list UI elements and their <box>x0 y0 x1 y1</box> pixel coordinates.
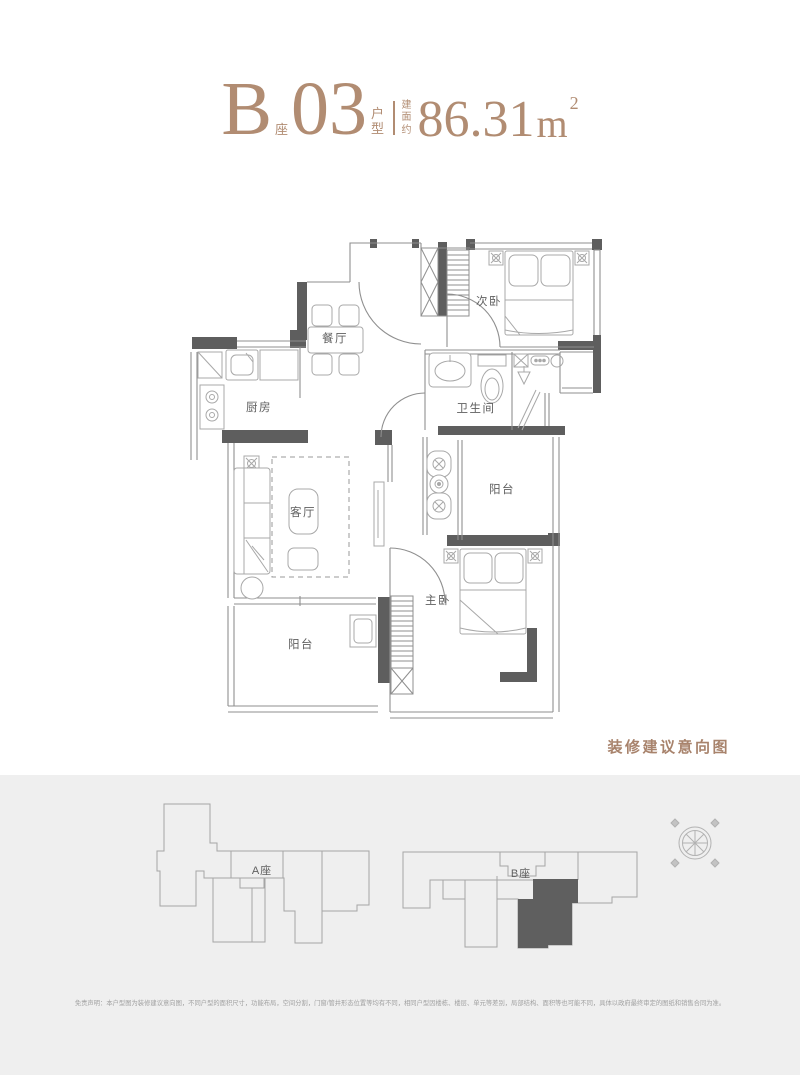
area-unit: m <box>537 108 568 140</box>
compass-icon <box>671 819 719 867</box>
label-kitchen: 厨房 <box>246 401 272 414</box>
building-a-label: A座 <box>252 863 272 877</box>
title-divider <box>393 101 395 135</box>
label-balcony-south: 阳台 <box>288 637 314 651</box>
building-letter: B <box>221 78 272 140</box>
site-plan: A座 B座 免责声明：本户型图为装修建议意向图，不同户型的面积尺寸，功能布局，空… <box>0 775 800 1075</box>
unit-type-label: 户型 <box>371 107 384 137</box>
furniture <box>198 251 589 647</box>
area-prefix: 建面约 <box>402 100 412 138</box>
area-value: 86.31 <box>418 99 535 141</box>
plan-caption: 装修建议意向图 <box>607 736 730 757</box>
area-exponent: 2 <box>570 94 579 112</box>
label-living: 客厅 <box>290 505 316 519</box>
label-dining: 餐厅 <box>322 331 348 345</box>
floorplan-drawing: 次卧 餐厅 厨房 卫生间 阳台 客厅 主卧 阳台 <box>185 230 605 730</box>
label-second-bedroom: 次卧 <box>476 294 502 308</box>
building-suffix: 座 <box>275 123 289 136</box>
building-b-label: B座 <box>511 866 531 880</box>
label-balcony-east: 阳台 <box>489 482 515 496</box>
label-bathroom: 卫生间 <box>457 401 496 415</box>
unit-number: 03 <box>291 78 367 140</box>
label-master-bedroom: 主卧 <box>425 594 451 607</box>
highlighted-unit-b03 <box>518 879 578 948</box>
disclaimer-text: 免责声明：本户型图为装修建议意向图，不同户型的面积尺寸，功能布局，空间分割，门窗… <box>75 998 725 1007</box>
unit-title: B 座 03 户型 建面约 86.31 m 2 <box>0 78 800 140</box>
site-band: A座 B座 免责声明：本户型图为装修建议意向图，不同户型的面积尺寸，功能布局，空… <box>0 775 800 1075</box>
floorplan-poster: B 座 03 户型 建面约 86.31 m 2 <box>0 0 800 1078</box>
